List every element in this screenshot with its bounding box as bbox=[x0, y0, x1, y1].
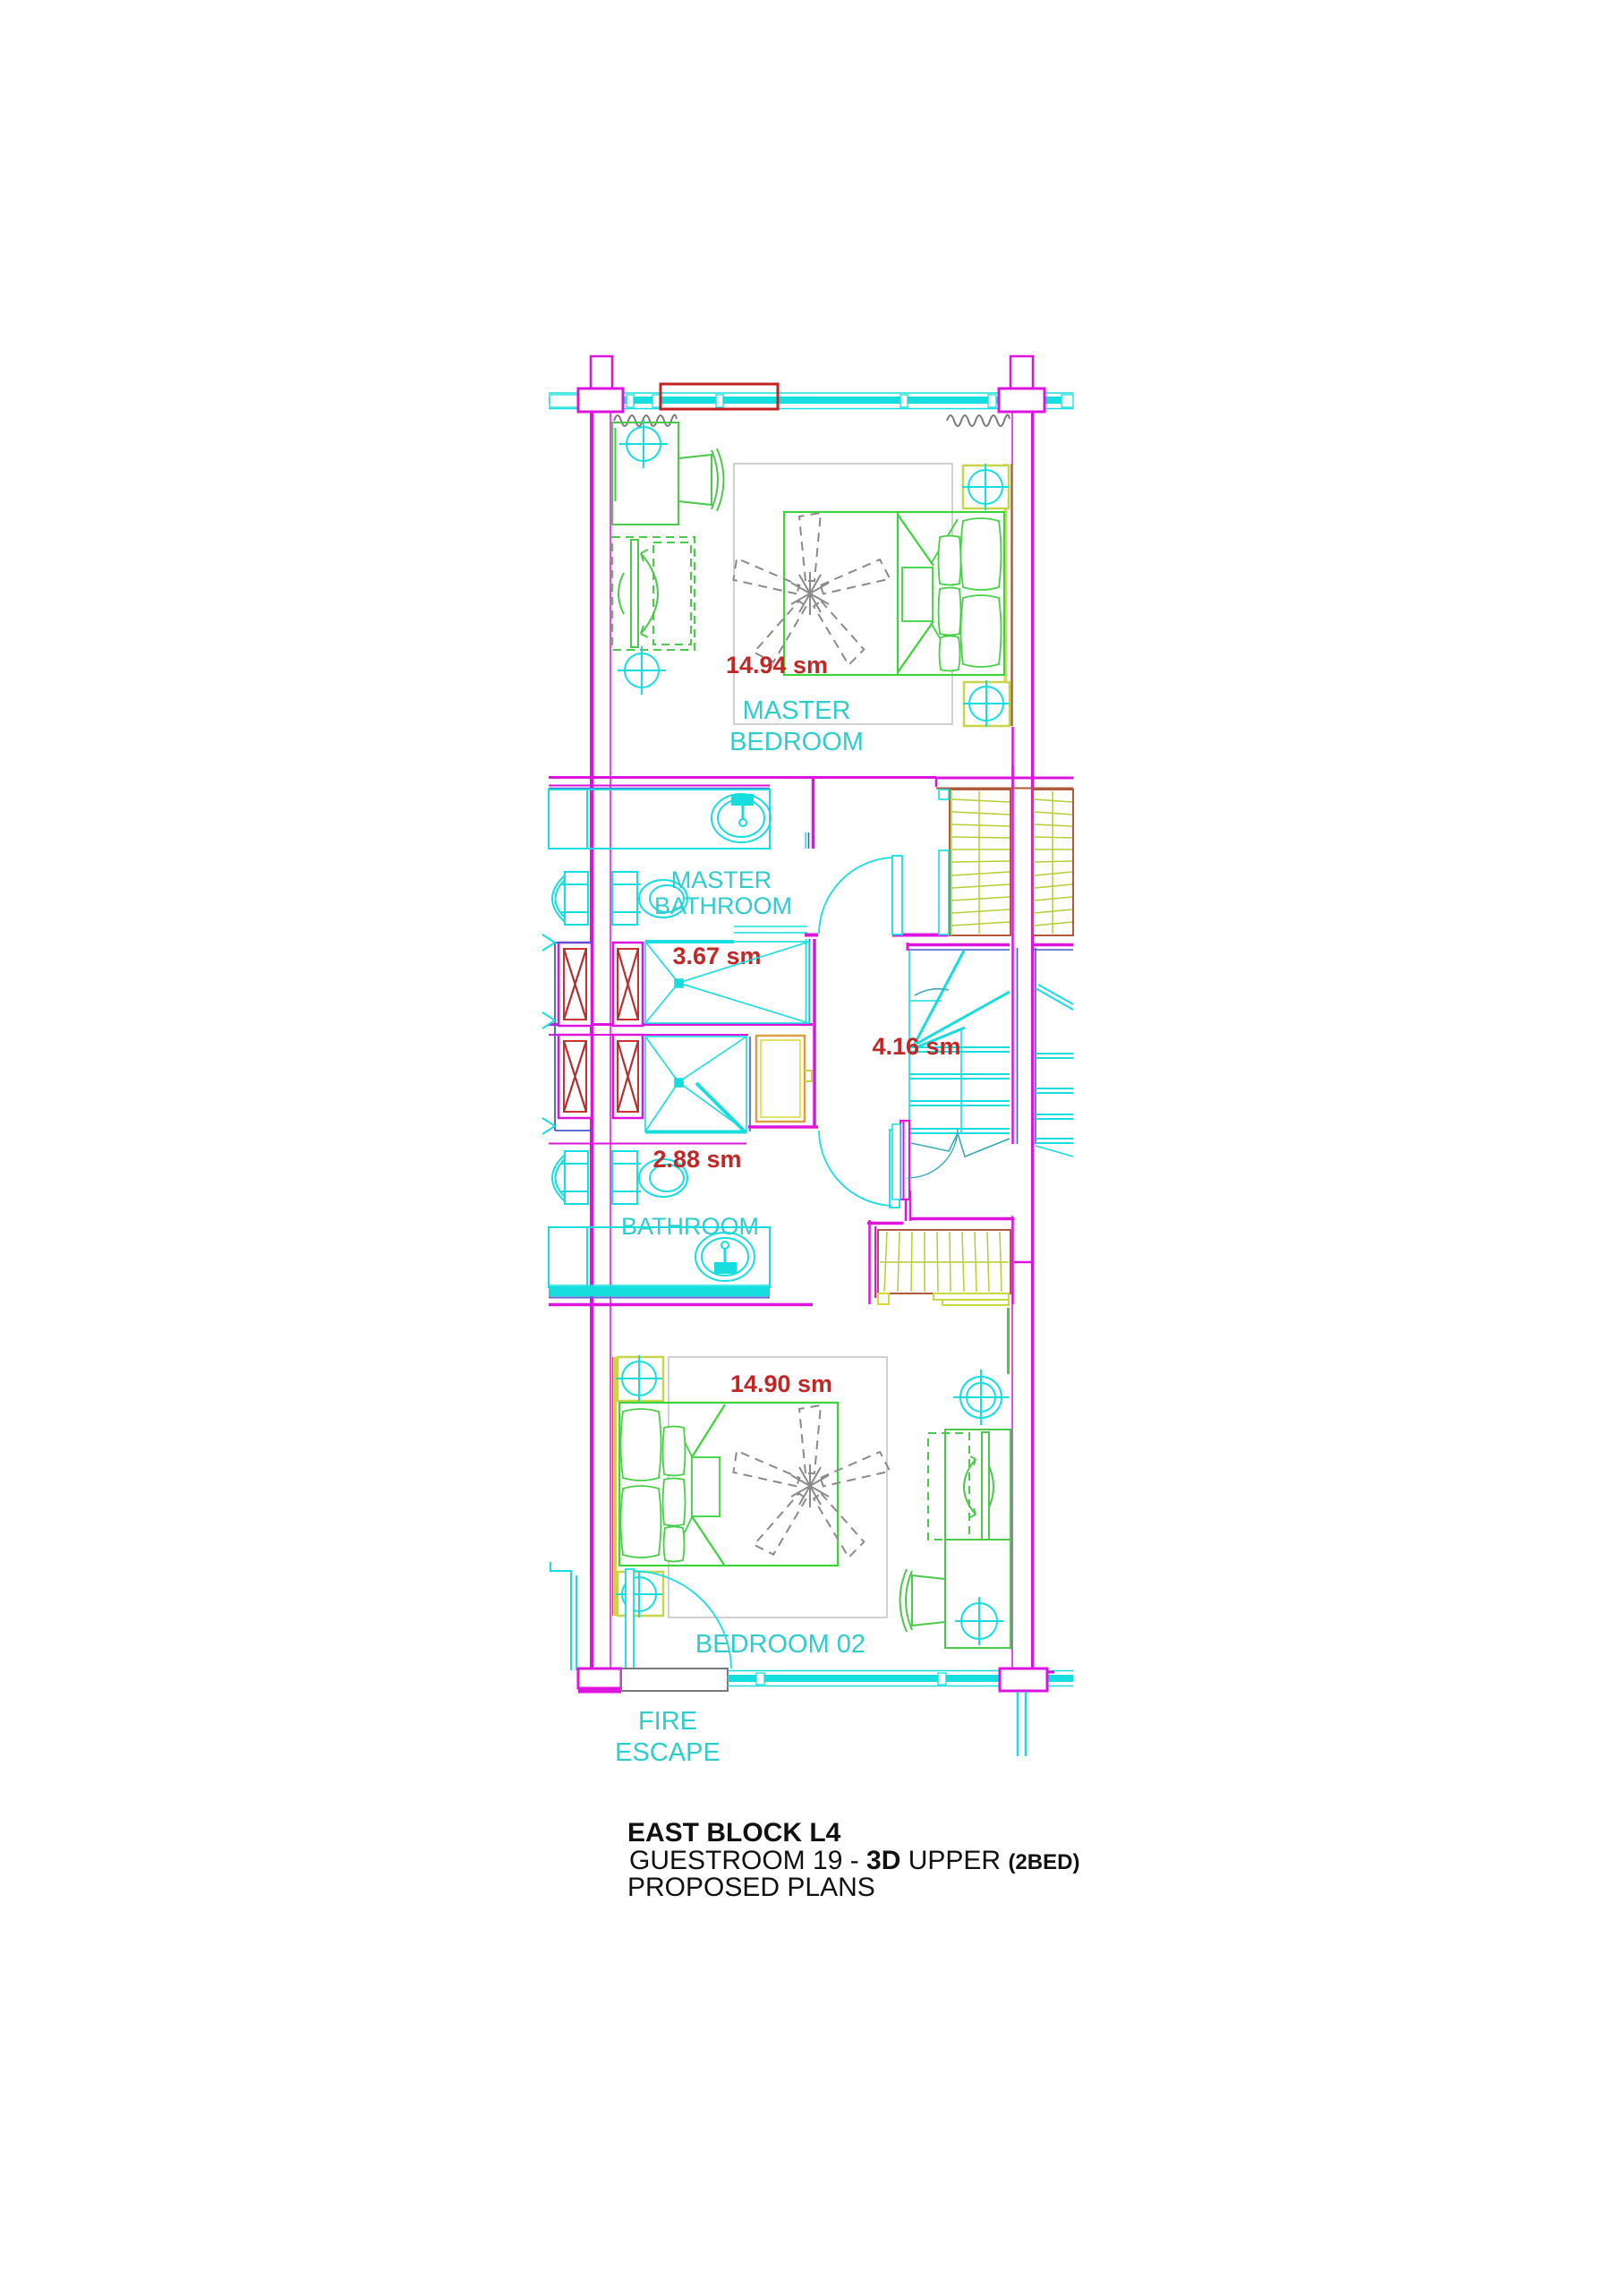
svg-text:14.90 sm: 14.90 sm bbox=[730, 1370, 832, 1397]
svg-text:MASTER: MASTER bbox=[671, 866, 772, 893]
svg-text:MASTER: MASTER bbox=[743, 696, 851, 725]
svg-text:2.88 sm: 2.88 sm bbox=[652, 1146, 741, 1173]
svg-text:PROPOSED PLANS: PROPOSED PLANS bbox=[627, 1873, 875, 1902]
svg-text:ESCAPE: ESCAPE bbox=[615, 1738, 720, 1767]
svg-text:4.16 sm: 4.16 sm bbox=[872, 1033, 960, 1060]
svg-text:BEDROOM: BEDROOM bbox=[729, 728, 864, 756]
svg-text:FIRE: FIRE bbox=[638, 1707, 697, 1736]
svg-text:3.67 sm: 3.67 sm bbox=[672, 943, 761, 969]
svg-text:14.94 sm: 14.94 sm bbox=[726, 652, 828, 679]
svg-text:EAST BLOCK L4: EAST BLOCK L4 bbox=[627, 1818, 841, 1848]
svg-text:BATHROOM: BATHROOM bbox=[654, 892, 792, 919]
svg-text:GUESTROOM 19 - 3D UPPER (2BED): GUESTROOM 19 - 3D UPPER (2BED) bbox=[629, 1846, 1079, 1875]
svg-text:BEDROOM 02: BEDROOM 02 bbox=[695, 1630, 865, 1659]
